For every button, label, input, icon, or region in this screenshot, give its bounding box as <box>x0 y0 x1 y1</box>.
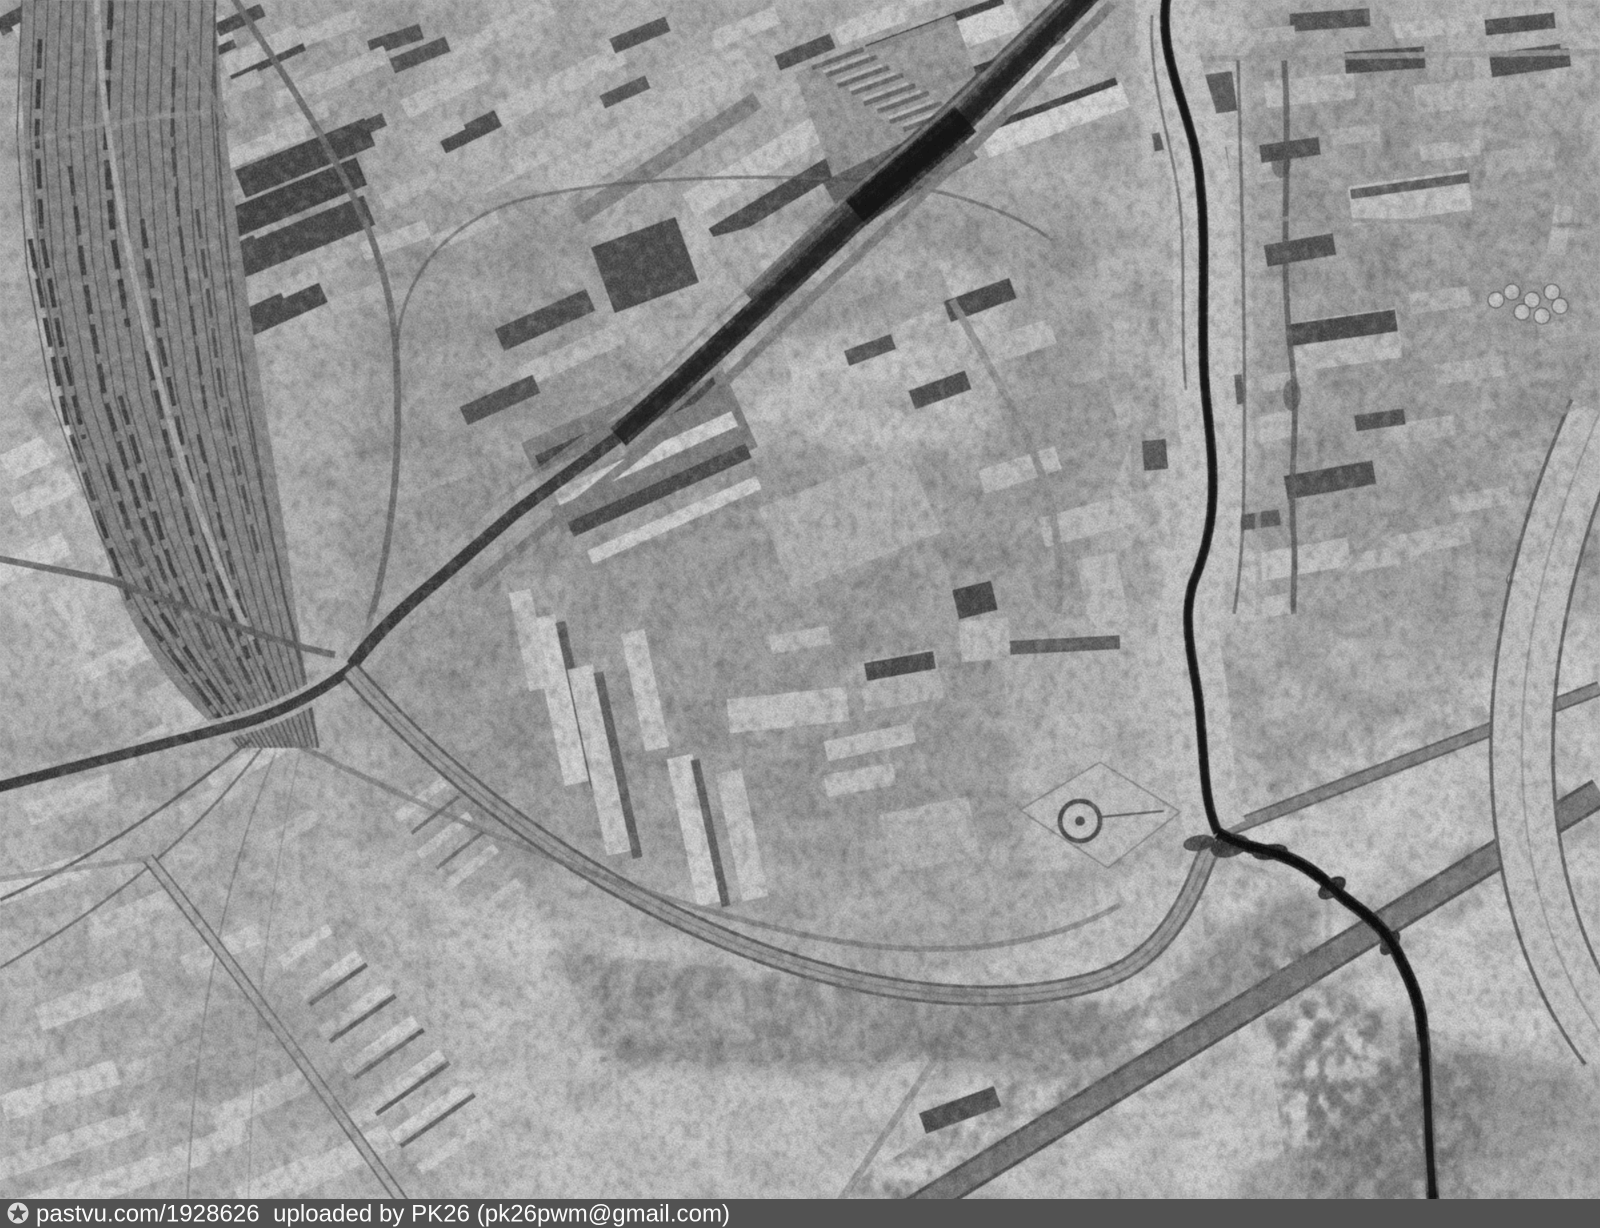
svg-text:pastvu.com/1928626 uploaded b: pastvu.com/1928626 uploaded by PK26 (pk2… <box>36 1201 730 1228</box>
